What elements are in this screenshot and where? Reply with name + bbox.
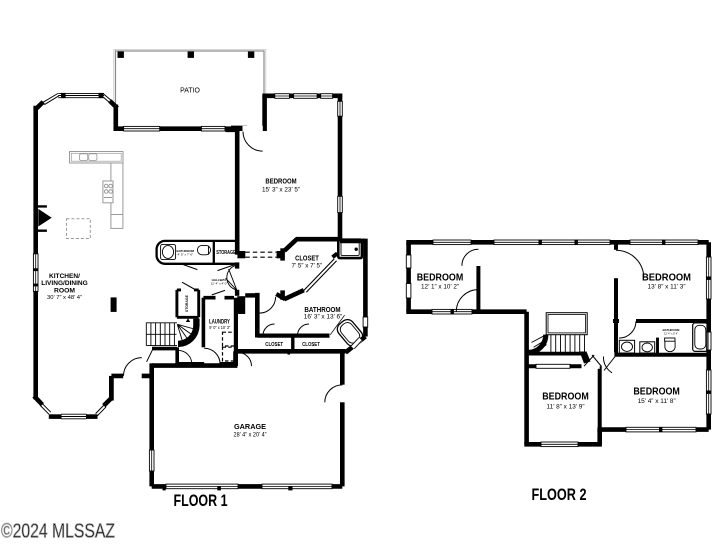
svg-text:13’ 8” x 11’ 3”: 13’ 8” x 11’ 3” — [648, 285, 686, 291]
svg-text:©2024 MLSSAZ: ©2024 MLSSAZ — [1, 521, 115, 543]
svg-text:GARAGE: GARAGE — [234, 422, 266, 431]
svg-text:LAUNDRY: LAUNDRY — [209, 320, 230, 326]
svg-text:BEDROOM: BEDROOM — [633, 387, 680, 398]
svg-text:BEDROOM: BEDROOM — [642, 273, 691, 284]
svg-text:STORAGE: STORAGE — [216, 250, 236, 256]
svg-text:PATIO: PATIO — [180, 86, 200, 95]
svg-text:STORAGE: STORAGE — [185, 294, 189, 312]
svg-text:28’ 4” x 20’ 4”: 28’ 4” x 20’ 4” — [234, 431, 267, 438]
svg-text:4’ 5” x 7’ 6”: 4’ 5” x 7’ 6” — [178, 253, 194, 257]
svg-text:HALLWAY: HALLWAY — [212, 278, 227, 282]
svg-text:BEDROOM: BEDROOM — [542, 392, 589, 403]
svg-text:CLOSET: CLOSET — [265, 342, 283, 348]
svg-text:BEDROOM: BEDROOM — [417, 273, 464, 284]
svg-text:7’ 5” x 7’ 5”: 7’ 5” x 7’ 5” — [292, 263, 323, 269]
svg-text:30’ 7” x 48’ 4”: 30’ 7” x 48’ 4” — [47, 295, 82, 301]
svg-text:CLOSET: CLOSET — [302, 342, 320, 348]
svg-text:BEDROOM: BEDROOM — [265, 178, 296, 185]
svg-text:CLOSET: CLOSET — [295, 255, 319, 262]
svg-text:15’ 3” x 23’ 5”: 15’ 3” x 23’ 5” — [262, 186, 300, 193]
svg-text:12’ 4” x 4’ 0”: 12’ 4” x 4’ 0” — [211, 282, 228, 286]
svg-text:BATHROOM: BATHROOM — [663, 328, 680, 332]
svg-text:16’ 3” x 13’ 6”: 16’ 3” x 13’ 6” — [304, 314, 343, 321]
svg-text:FLOOR 2: FLOOR 2 — [532, 485, 587, 504]
svg-text:KITCHEN/: KITCHEN/ — [49, 273, 80, 280]
svg-text:BATHROOM: BATHROOM — [304, 305, 340, 314]
svg-text:11’ 8” x 13’ 9”: 11’ 8” x 13’ 9” — [547, 405, 585, 411]
svg-text:FLOOR 1: FLOOR 1 — [174, 491, 228, 510]
svg-text:9’ 0” x 10’ 3”: 9’ 0” x 10’ 3” — [209, 325, 230, 331]
svg-text:ROOM: ROOM — [54, 287, 75, 294]
svg-text:15’ 4” x 11’ 8”: 15’ 4” x 11’ 8” — [638, 399, 676, 405]
svg-text:12’ 1” x 10’ 2”: 12’ 1” x 10’ 2” — [421, 285, 459, 291]
svg-text:12’ 4” x 5’ 4”: 12’ 4” x 5’ 4” — [664, 332, 678, 336]
svg-text:BATHROOM: BATHROOM — [177, 249, 195, 253]
svg-text:LIVING/DINING: LIVING/DINING — [41, 280, 88, 287]
